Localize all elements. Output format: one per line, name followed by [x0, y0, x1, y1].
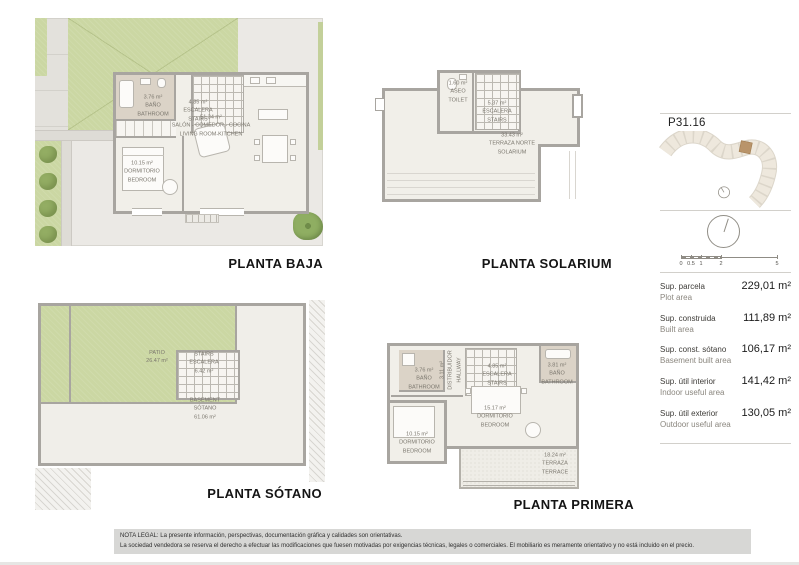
nightstand-icon	[521, 388, 527, 394]
appliance-icon	[266, 77, 276, 84]
legal-line-1: NOTA LEGAL: La presente información, per…	[120, 532, 745, 542]
chair-icon	[162, 179, 178, 195]
garden-patch-topleft	[35, 18, 47, 76]
sink-icon	[459, 74, 467, 80]
sidebar-divider	[660, 272, 791, 273]
site-location-map	[653, 131, 795, 209]
area-label-en: Outdoor useful area	[660, 420, 731, 429]
bathroom-left-zone	[399, 350, 445, 392]
area-label-en: Indoor useful area	[660, 388, 725, 397]
scale-tick	[701, 255, 702, 259]
scale-tick-label: 5	[775, 261, 778, 267]
area-value: 141,42 m²	[741, 375, 791, 387]
area-row: Sup. útil exterior Outdoor useful area 1…	[660, 409, 791, 435]
area-row: Sup. útil interior Indoor useful area 14…	[660, 377, 791, 403]
highlighted-plot	[739, 141, 752, 154]
bed-icon	[393, 406, 435, 438]
hedge-right	[318, 22, 323, 150]
toilet-icon	[447, 78, 457, 90]
area-label-es: Sup. parcela	[660, 282, 705, 291]
stairs-zone	[176, 350, 240, 400]
area-row: Sup. construida Built area 111,89 m²	[660, 314, 791, 340]
chair-icon	[290, 155, 296, 161]
void-line	[569, 151, 570, 199]
partition-wall	[472, 73, 474, 131]
wardrobe-icon	[116, 121, 176, 138]
open-void	[538, 144, 580, 202]
bed-pillow-line	[122, 155, 164, 156]
chair-icon	[525, 422, 541, 438]
area-label-en: Plot area	[660, 293, 692, 302]
chair-icon	[254, 139, 260, 145]
hatch-boundary-bottom	[35, 468, 91, 510]
scale-tick-label: 2	[719, 261, 722, 267]
scale-tick	[721, 255, 722, 259]
scale-tick-label: 0	[679, 261, 682, 267]
area-row: Sup. const. sótano Basement built area 1…	[660, 345, 791, 371]
legal-line-2: La sociedad vendedora se reserva el dere…	[120, 542, 745, 552]
entry-steps-icon	[185, 214, 219, 223]
plan-title-planta-primera: PLANTA PRIMERA	[514, 497, 634, 512]
floorplan-planta-solarium: 1.60 m² ASEO TOILET 5.37 m² ESCALERA STA…	[375, 58, 643, 278]
compass-needle	[723, 219, 728, 233]
plan-title-planta-baja: PLANTA BAJA	[228, 256, 323, 271]
partition-wall	[391, 395, 463, 397]
bathtub-icon	[119, 80, 134, 108]
chair-icon	[254, 155, 260, 161]
sidebar-divider	[660, 113, 791, 114]
railing-lines	[387, 173, 535, 199]
north-arrow-icon	[707, 215, 740, 248]
area-value: 106,17 m²	[741, 343, 791, 355]
area-value: 229,01 m²	[741, 280, 791, 292]
area-value: 111,89 m²	[743, 312, 791, 324]
bathroom-zone	[116, 75, 176, 121]
plan-title-planta-sotano: PLANTA SÓTANO	[207, 486, 322, 501]
area-label-es: Sup. const. sótano	[660, 345, 726, 354]
sofa-icon	[193, 122, 231, 159]
stairs-zone	[475, 73, 520, 130]
floorplan-planta-baja: 3.76 m² BAÑO BATHROOM 4.85 m² ESCALERA S…	[35, 14, 325, 272]
sidebar-divider	[660, 210, 791, 211]
bathtub-icon	[545, 349, 571, 359]
area-label-en: Basement built area	[660, 356, 731, 365]
area-label-es: Sup. útil interior	[660, 377, 716, 386]
wall-detail	[572, 94, 583, 118]
path-vertical	[61, 141, 72, 246]
area-label-en: Built area	[660, 325, 694, 334]
kitchen-island-icon	[258, 109, 288, 120]
legal-note: NOTA LEGAL: La presente información, per…	[114, 529, 751, 554]
bathroom-right-zone	[539, 346, 576, 383]
plan-sheet: 3.76 m² BAÑO BATHROOM 4.85 m² ESCALERA S…	[0, 0, 799, 565]
area-row: Sup. parcela Plot area 229,01 m²	[660, 282, 791, 308]
bed-icon	[122, 147, 164, 191]
bed-icon	[471, 386, 521, 414]
palm-tree-icon	[293, 212, 323, 240]
partition-wall	[182, 136, 184, 211]
shower-icon	[402, 353, 415, 366]
scale-tick-label: 0.5	[687, 261, 695, 267]
dining-table-icon	[262, 135, 288, 163]
plot-reference: P31.16	[668, 117, 706, 129]
area-label-es: Sup. útil exterior	[660, 409, 718, 418]
nightstand-icon	[465, 388, 471, 394]
floorplan-planta-primera: 3.76 m² BAÑO BATHROOM 3.11 m² DISTRIBUID…	[385, 340, 643, 520]
area-value: 130,05 m²	[741, 407, 791, 419]
scale-tick	[681, 255, 682, 259]
void-line	[575, 151, 576, 199]
scale-bar: 0 0.5 1 2 5	[679, 252, 781, 268]
hatch-boundary-right	[309, 300, 325, 482]
building-outline	[113, 72, 309, 214]
sink-icon	[140, 78, 151, 85]
scale-tick	[691, 255, 692, 259]
floorplan-planta-sotano: PATIO 26.47 m² STAIRS ESCALERA 6.42 m² B…	[35, 300, 325, 512]
area-label-es: Sup. construida	[660, 314, 716, 323]
wall-detail	[375, 98, 385, 111]
chair-icon	[290, 139, 296, 145]
patio-wall	[69, 306, 71, 402]
plan-title-planta-solarium: PLANTA SOLARIUM	[482, 256, 612, 271]
sidebar-divider	[660, 443, 791, 444]
window-icon	[132, 208, 162, 216]
scale-tick-label: 1	[699, 261, 702, 267]
scale-tick	[777, 255, 778, 259]
toilet-icon	[157, 78, 166, 88]
appliance-icon	[250, 77, 260, 84]
railing-lines	[463, 481, 575, 486]
